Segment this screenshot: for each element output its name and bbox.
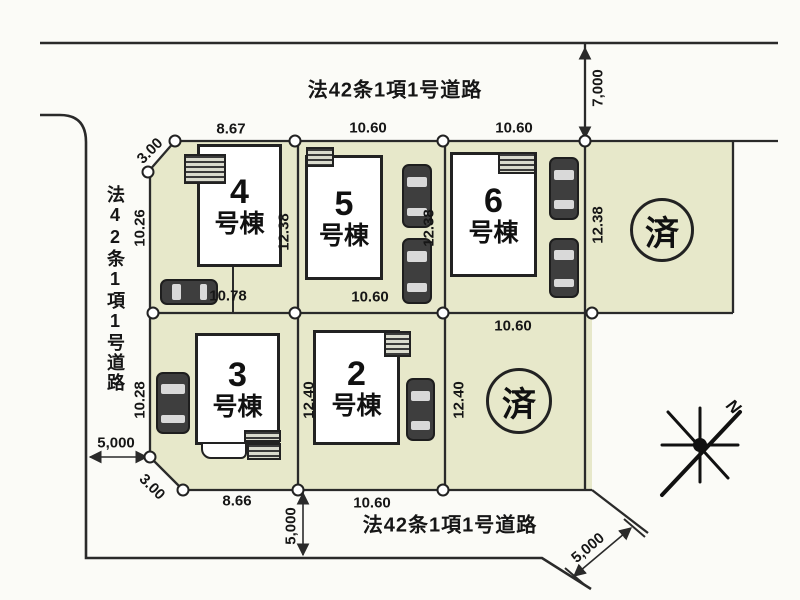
building-3: 3 号棟 xyxy=(195,333,280,445)
dim-plot4-top: 8.67 xyxy=(216,121,245,138)
sold-label: 済 xyxy=(502,377,536,426)
dim-plot4-left: 10.26 xyxy=(132,209,149,247)
hatched-structure xyxy=(247,443,281,460)
compass-north-icon xyxy=(662,408,740,495)
building-5: 5 号棟 xyxy=(305,155,383,280)
building-number: 3 xyxy=(228,357,247,393)
building-suffix: 号棟 xyxy=(468,219,518,247)
dim-plot4-bottom: 10.78 xyxy=(209,288,247,305)
road-label-left: 法42条1項1号道路 xyxy=(103,185,127,393)
building-suffix: 号棟 xyxy=(214,210,264,238)
dim-plot6-right: 12.38 xyxy=(590,206,607,244)
building-suffix: 号棟 xyxy=(319,222,369,250)
dim-sold-bottom-top: 10.60 xyxy=(494,318,532,335)
sold-badge-top: 済 xyxy=(630,198,694,262)
hatched-structure xyxy=(184,154,226,184)
dim-plot5-bottom: 10.60 xyxy=(351,289,389,306)
dim-plot5-top: 10.60 xyxy=(349,120,387,137)
building-suffix: 号棟 xyxy=(212,393,262,421)
car-icon xyxy=(549,157,579,220)
dim-plot3-bottom: 8.66 xyxy=(222,493,251,510)
dim-plot6-top: 10.60 xyxy=(495,120,533,137)
dim-plot3-left: 10.28 xyxy=(132,381,149,419)
sold-label: 済 xyxy=(645,206,679,255)
road-label-top: 法42条1項1号道路 xyxy=(308,74,483,103)
hatched-structure xyxy=(306,147,334,167)
hatched-structure xyxy=(384,331,411,357)
building-number: 6 xyxy=(484,183,503,219)
building-number: 4 xyxy=(230,174,249,210)
dim-sold-bottom-left: 12.40 xyxy=(451,381,468,419)
building-suffix: 号棟 xyxy=(331,392,381,420)
road-label-bottom: 法42条1項1号道路 xyxy=(363,509,538,538)
hatched-structure xyxy=(498,152,536,174)
car-icon xyxy=(156,372,190,434)
car-icon xyxy=(402,238,432,304)
sold-badge-bottom: 済 xyxy=(486,368,552,434)
site-plan: 4 号棟 5 号棟 6 号棟 3 号棟 2 号棟 済 済 法42条1項1号道路 … xyxy=(0,0,800,600)
hatched-structure xyxy=(244,430,281,442)
car-icon xyxy=(406,378,435,441)
dim-road-bottom-width: 5,000 xyxy=(283,507,300,545)
building-number: 5 xyxy=(335,186,354,222)
building-number: 2 xyxy=(347,356,366,392)
dim-plot4-right: 12.38 xyxy=(276,213,293,251)
car-icon xyxy=(549,238,579,298)
entrance-porch xyxy=(201,442,247,459)
dim-plot2-left: 12.40 xyxy=(301,381,318,419)
dim-plot5-right: 12.38 xyxy=(421,209,438,247)
dim-plot2-bottom: 10.60 xyxy=(353,495,391,512)
dim-road-top-width: 7,000 xyxy=(590,69,607,107)
dim-road-left-width: 5,000 xyxy=(97,435,135,452)
